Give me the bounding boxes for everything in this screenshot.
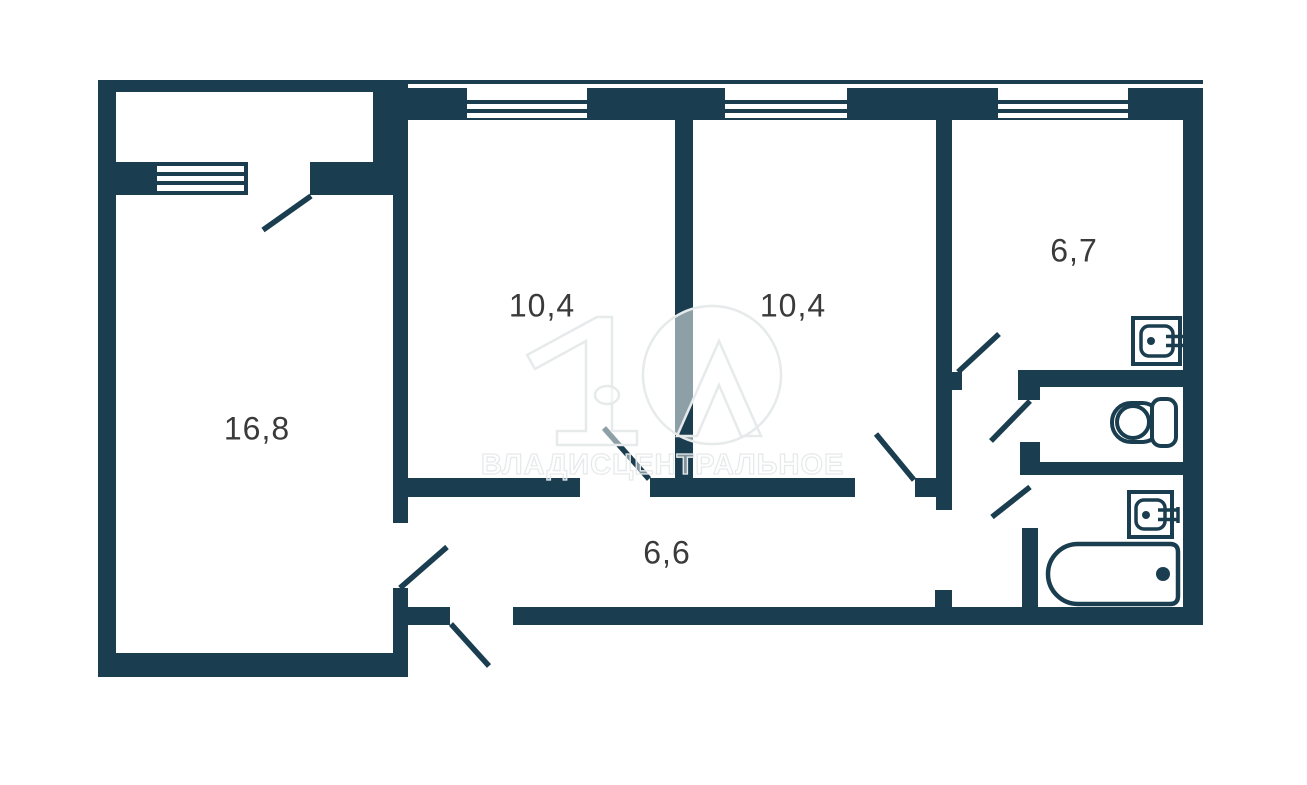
entry-door-swing [451, 624, 489, 666]
bedroom2-kitchen-wall [936, 118, 952, 510]
area-label-corridor: 6,6 [643, 535, 690, 572]
balcony-side-block [373, 84, 408, 195]
bathroom-left-wall [1022, 528, 1038, 607]
balcony-door-swing [263, 196, 311, 230]
kitchen-door-stub [952, 372, 962, 390]
watermark-one-glyph [527, 317, 637, 445]
bottom-wall-left [98, 653, 408, 677]
toilet-icon [1112, 399, 1176, 446]
window-bedroom-2 [725, 84, 847, 118]
window-kitchen [998, 84, 1128, 118]
watermark-text: ВЛАДИСЦЕНТРАЛЬНОЕ [481, 449, 844, 482]
floorplan-drawing [0, 0, 1307, 785]
left-wall [98, 80, 116, 677]
window-balcony [153, 162, 248, 195]
bathroom-sink-icon [1129, 492, 1178, 537]
balcony-sill-right [310, 162, 373, 195]
corridor-bottom-stub [935, 590, 952, 607]
kitchen-sink-icon [1133, 318, 1186, 364]
bathroom-door-swing [992, 487, 1030, 517]
area-label-bedroom-1: 10,4 [509, 288, 575, 325]
wc-left-stub-upper [1018, 387, 1040, 400]
living-room-door-swing [400, 547, 447, 588]
kitchen-door-swing [958, 334, 999, 372]
door-swings [263, 196, 1030, 666]
floor-plan: 16,8 10,4 10,4 6,7 6,6 ВЛАДИСЦЕНТРАЛЬНОЕ [0, 0, 1307, 785]
bedroom2-door-swing [876, 434, 914, 480]
kitchen-bottom-wall [1018, 370, 1183, 387]
entry-wall-stub [408, 607, 450, 625]
window-bedroom-1 [467, 84, 587, 118]
area-label-kitchen: 6,7 [1050, 233, 1097, 270]
area-label-bedroom-2: 10,4 [760, 288, 826, 325]
wc-left-stub-lower [1020, 442, 1040, 475]
bottom-wall-right [513, 607, 1203, 625]
wc-door-swing [991, 401, 1030, 441]
watermark-logo [527, 306, 781, 445]
watermark-oval [595, 386, 619, 404]
area-label-living-room: 16,8 [224, 411, 290, 448]
balcony-sill-left [115, 162, 153, 195]
corridor-top-wall-c [915, 478, 937, 497]
living-room-right-wall-upper [393, 195, 408, 523]
balcony-top-wall [98, 80, 393, 92]
right-wall [1183, 118, 1203, 625]
bathtub-icon [1048, 544, 1178, 604]
watermark-circle-house [643, 306, 781, 444]
wc-bath-divider-wall [1040, 462, 1183, 475]
